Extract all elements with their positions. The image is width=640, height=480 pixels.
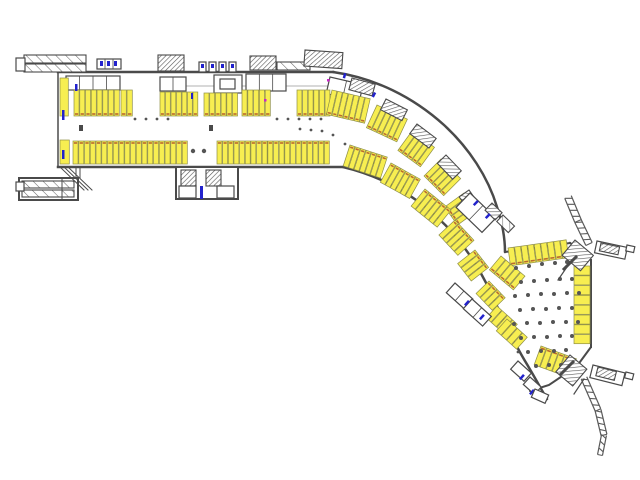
south-exit-room-a [179, 186, 196, 198]
bottom-stalls-1-stall [182, 141, 187, 164]
top-stalls-1-stall [74, 90, 79, 116]
bottom-stalls-2-stall [245, 141, 250, 164]
corridor-columns-a-dot [167, 118, 170, 121]
pillar-a [79, 125, 83, 131]
bottom-stalls-2-label-mark [257, 142, 260, 144]
stub-blue-d [231, 64, 234, 68]
top-stalls-2-label-mark [122, 113, 126, 115]
bottom-stalls-2-stall [302, 141, 307, 164]
top-stalls-5-label-mark [266, 113, 269, 115]
bottom-stalls-1-label-mark [172, 142, 175, 144]
bottom-stalls-1-stall [136, 141, 141, 164]
canopy-hatch-b [250, 56, 276, 70]
rotunda-columns-dot [532, 279, 536, 283]
top-stalls-3-label-mark [188, 113, 191, 115]
rotunda-columns-dot [544, 307, 548, 311]
top-stalls-5-stall [259, 90, 264, 116]
rotunda-right-stalls-stall [574, 295, 590, 304]
rotunda-columns-dot [525, 321, 529, 325]
bottom-stalls-2-stall [223, 141, 228, 164]
bottom-stalls-2-stall [279, 141, 284, 164]
bottom-stalls-2-stall [319, 141, 324, 164]
rotunda-columns-dot [526, 293, 530, 297]
south-exit-stair-b [206, 170, 221, 186]
nw-ramp-landing [16, 58, 25, 71]
rotunda-columns-dot [557, 306, 561, 310]
bottom-stalls-2-stall [324, 141, 329, 164]
south-exit-room-b [217, 186, 234, 198]
bottom-stalls-2-label-mark [291, 142, 294, 144]
rotunda-columns-dot [552, 349, 556, 353]
top-stalls-6-label-mark [298, 113, 301, 115]
top-stalls-3-label-mark [172, 113, 175, 115]
corridor-columns-a-dot [287, 118, 290, 121]
bottom-stalls-1-stall [177, 141, 182, 164]
bottom-stalls-2-label-mark [235, 142, 238, 144]
top-stalls-5-stall [248, 90, 253, 116]
magenta-dot-a [264, 99, 267, 102]
rotunda-columns-dot [534, 364, 538, 368]
top-stalls-4-label-mark [228, 113, 231, 115]
bottom-stalls-1-label-mark [80, 142, 83, 144]
canopy-hatch-a [158, 55, 184, 71]
rotunda-columns-dot [570, 334, 574, 338]
bottom-stalls-1-label-mark [91, 142, 94, 144]
top-stalls-2-stall [121, 90, 126, 116]
top-stalls-3-label-mark [194, 113, 197, 115]
pillar-b [209, 125, 213, 131]
top-stalls-1-label-mark [115, 113, 118, 115]
bottom-stalls-1-label-mark [154, 142, 157, 144]
bottom-stalls-1-stall [148, 141, 153, 164]
bend-corridor-columns-dot [517, 351, 520, 354]
rotunda-columns-dot [552, 292, 556, 296]
top-stalls-1-stall [91, 90, 96, 116]
rotunda-columns-dot [576, 320, 580, 324]
bottom-stalls-1-label-mark [149, 142, 152, 144]
top-stalls-1-label-mark [109, 113, 112, 115]
top-rooms-d [246, 74, 286, 91]
rotunda-columns-dot [539, 292, 543, 296]
canopy-hatch-c-group [304, 50, 343, 69]
stub-blue-b [211, 64, 214, 68]
bottom-stalls-1-stall [108, 141, 113, 164]
bend-corridor-columns-dot [344, 143, 347, 146]
bottom-stalls-1-label-mark [143, 142, 146, 144]
top-stalls-4-stall [210, 93, 215, 116]
top-stalls-6-stall [314, 90, 319, 116]
top-stalls-3-stall [166, 92, 171, 116]
elevator-blue-c [114, 61, 117, 66]
bottom-stalls-2-stall [313, 141, 318, 164]
top-stalls-6-stall [297, 90, 302, 116]
top-stalls-1-stall [109, 90, 114, 116]
bottom-stalls-1-stall [96, 141, 101, 164]
bottom-stalls-2-label-mark [303, 142, 306, 144]
rotunda-columns-dot [513, 294, 517, 298]
bottom-stalls-2-stall [285, 141, 290, 164]
top-stalls-4-label-mark [216, 113, 219, 115]
bottom-stalls-2-stall [251, 141, 256, 164]
bottom-stalls-2-label-mark [325, 142, 328, 144]
bottom-stalls-2-label-mark [224, 142, 227, 144]
bottom-stalls-2-stall [234, 141, 239, 164]
rotunda-right-stalls-stall [574, 305, 590, 314]
bottom-stalls-2-stall [228, 141, 233, 164]
bottom-stalls-1-stall [73, 141, 78, 164]
bottom-stalls-2-stall [296, 141, 301, 164]
bottom-stalls-2-stall [257, 141, 262, 164]
top-stalls-3-stall [171, 92, 176, 116]
top-stalls-5-label-mark [255, 113, 258, 115]
rotunda-columns-dot [545, 335, 549, 339]
bottom-stalls-1-label-mark [108, 142, 111, 144]
top-stalls-4-stall [215, 93, 220, 116]
corridor-columns-a-dot [145, 118, 148, 121]
pier-blue-a [75, 84, 78, 91]
top-stalls-1-stall [80, 90, 85, 116]
bottom-stalls-2-stall [262, 141, 267, 164]
top-stalls-2-stall [127, 90, 132, 116]
rotunda-columns-dot [531, 307, 535, 311]
rotunda-columns-dot [553, 261, 557, 265]
top-stalls-2-label-mark [128, 113, 131, 115]
top-stalls-3-label-mark [183, 113, 186, 115]
bottom-stalls-2-label-mark [218, 142, 221, 144]
bottom-stalls-1-stall [113, 141, 118, 164]
rotunda-right-stalls-stall [574, 286, 590, 295]
top-stalls-5-stall [265, 90, 270, 116]
corridor-columns-a-dot [276, 118, 279, 121]
bottom-stalls-2-label-mark [263, 142, 266, 144]
rotunda-columns-dot [547, 363, 551, 367]
top-rooms-c-inner [220, 79, 235, 89]
bottom-stalls-1-label-mark [166, 142, 169, 144]
bottom-stalls-2-label-mark [320, 142, 323, 144]
rotunda-columns-dot [512, 322, 516, 326]
bottom-stalls-1-stall [90, 141, 95, 164]
top-stalls-1-label-mark [98, 113, 101, 115]
bottom-stalls-1-label-mark [137, 142, 140, 144]
bottom-stalls-2-stall [217, 141, 222, 164]
rotunda-columns-dot [565, 291, 569, 295]
bottom-stalls-1-label-mark [97, 142, 100, 144]
sw-ramp-landing [16, 182, 24, 191]
rotunda-columns-dot [532, 335, 536, 339]
bend-corridor-columns-dot [299, 128, 302, 131]
top-stalls-4-label-mark [205, 113, 208, 115]
corridor-columns-a-dot [320, 118, 323, 121]
top-stalls-1-label-mark [86, 113, 89, 115]
top-stalls-4-stall [221, 93, 226, 116]
bottom-stalls-1-stall [165, 141, 170, 164]
top-stalls-1-stall [86, 90, 91, 116]
bottom-stalls-1-stall [79, 141, 84, 164]
rotunda-columns-dot [564, 348, 568, 352]
top-stalls-6-label-mark [320, 113, 323, 115]
stub-blue-c [221, 64, 224, 68]
bottom-stalls-2-label-mark [241, 142, 244, 144]
bottom-stalls-1-stall [102, 141, 107, 164]
rotunda-columns-dot [570, 277, 574, 281]
top-stalls-6-label-mark [315, 113, 318, 115]
east-upper-bridge-end-group [626, 245, 635, 253]
rotunda-columns-dot [577, 291, 581, 295]
bottom-stalls-2-stall [307, 141, 312, 164]
bottom-stalls-2-stall [268, 141, 273, 164]
corridor-columns-a-dot [134, 118, 137, 121]
bottom-stalls-1-label-mark [177, 142, 180, 144]
rotunda-columns-dot [540, 262, 544, 266]
top-stalls-5-label-mark [260, 113, 263, 115]
corridor-columns-a-dot [156, 118, 159, 121]
bottom-stalls-2-label-mark [269, 142, 272, 144]
top-stalls-6-label-mark [304, 113, 307, 115]
east-lower-bridge-end [625, 372, 634, 380]
top-stalls-6-stall [319, 90, 324, 116]
bottom-stalls-2-label-mark [314, 142, 317, 144]
bottom-stalls-1-label-mark [160, 142, 163, 144]
rotunda-columns-dot [519, 336, 523, 340]
bottom-stalls-1-stall [159, 141, 164, 164]
bottom-stalls-2-label-mark [252, 142, 255, 144]
bottom-stalls-1-stall [119, 141, 124, 164]
top-stalls-3-stall [193, 92, 198, 116]
top-stalls-4-stall [227, 93, 232, 116]
rotunda-columns-dot [514, 266, 518, 270]
top-stalls-1-label-mark [92, 113, 95, 115]
sw-ramp-lower [22, 190, 74, 197]
bend-corridor-columns-dot [332, 134, 335, 137]
top-stalls-3-stall [177, 92, 182, 116]
rotunda-right-stalls-stall [574, 335, 590, 344]
top-stalls-3-label-mark [177, 113, 180, 115]
bottom-stalls-2-stall [274, 141, 279, 164]
top-stalls-3-stall [160, 92, 165, 116]
top-stalls-6-stall [308, 90, 313, 116]
bottom-stalls-1-label-mark [126, 142, 129, 144]
rotunda-columns-dot [526, 350, 530, 354]
top-stalls-6-label-mark [309, 113, 312, 115]
rotunda-columns-dot [539, 349, 543, 353]
bottom-stalls-1-label-mark [103, 142, 106, 144]
rotunda-columns-dot [538, 321, 542, 325]
floorplan-canvas [0, 0, 640, 480]
corridor-columns-a-dot [309, 118, 312, 121]
bottom-stalls-1-label-mark [114, 142, 117, 144]
bottom-stall-left-stall [60, 140, 69, 164]
bottom-stalls-1-stall [131, 141, 136, 164]
sw-ramp-upper [22, 181, 74, 188]
top-stalls-3-stall [182, 92, 187, 116]
pier-blue-b [62, 110, 65, 120]
bottom-stalls-2-stall [240, 141, 245, 164]
bottom-stalls-1-label-mark [131, 142, 134, 144]
top-stalls-1-label-mark [81, 113, 84, 115]
elevator-blue-a [100, 61, 103, 66]
bottom-stalls-2-stall [290, 141, 295, 164]
corridor-columns-b-dot [202, 149, 206, 153]
bottom-stalls-1-label-mark [74, 142, 77, 144]
top-stalls-3-label-mark [161, 113, 164, 115]
bend-corridor-columns-dot [321, 130, 324, 133]
top-stalls-5-stall [242, 90, 247, 116]
pier-blue-d [191, 93, 193, 99]
bottom-stalls-1-label-mark [120, 142, 123, 144]
elevator-blue-b [107, 61, 110, 66]
top-stalls-5-label-mark [243, 113, 246, 115]
south-exit-stair-a [181, 170, 196, 186]
corridor-columns-a-dot [298, 118, 301, 121]
rotunda-columns-dot [570, 306, 574, 310]
top-stalls-3-label-mark [166, 113, 169, 115]
top-stalls-5-stall [254, 90, 259, 116]
south-exit-blue [200, 186, 203, 199]
bottom-stalls-1-label-mark [85, 142, 88, 144]
magenta-dot-b [327, 79, 330, 82]
bottom-stalls-2-label-mark [286, 142, 289, 144]
rotunda-columns-dot [519, 280, 523, 284]
bottom-stalls-2-label-mark [229, 142, 232, 144]
stub-blue-a [201, 64, 204, 68]
rotunda-columns-dot [527, 264, 531, 268]
top-stalls-4-label-mark [222, 113, 225, 115]
east-upper-bridge-end [626, 245, 635, 253]
bottom-stalls-1-stall [171, 141, 176, 164]
rotunda-columns-dot [545, 278, 549, 282]
bottom-stalls-2-label-mark [246, 142, 249, 144]
floorplan-svg [0, 0, 640, 480]
top-stalls-1-stall [103, 90, 108, 116]
east-lower-bridge-end-group [625, 372, 634, 380]
bottom-stalls-2-label-mark [297, 142, 300, 144]
top-stalls-4-label-mark [233, 113, 236, 115]
bottom-stalls-1-stall [85, 141, 90, 164]
top-stalls-5-label-mark [249, 113, 252, 115]
bottom-stalls-2-label-mark [280, 142, 283, 144]
bottom-stalls-1-label-mark [183, 142, 186, 144]
pier-blue-c [62, 150, 65, 159]
rotunda-columns-dot [551, 320, 555, 324]
rotunda-columns-dot [558, 334, 562, 338]
bottom-stalls-2-label-mark [308, 142, 311, 144]
top-stalls-1-stall [97, 90, 102, 116]
top-stalls-4-stall [233, 93, 238, 116]
rotunda-right-stalls-stall [574, 276, 590, 285]
bottom-stalls-2-label-mark [274, 142, 277, 144]
top-stalls-1-label-mark [75, 113, 78, 115]
rotunda-columns-dot [518, 308, 522, 312]
canopy-hatch-c [304, 50, 343, 69]
bottom-stalls-1-stall [142, 141, 147, 164]
corridor-columns-b-dot [191, 149, 195, 153]
rotunda-right-stalls-stall [574, 325, 590, 334]
top-stalls-4-stall [204, 93, 209, 116]
nw-ramp-upper [24, 55, 86, 63]
bottom-stalls-1-stall [154, 141, 159, 164]
top-stalls-6-stall [303, 90, 308, 116]
rotunda-columns-dot [564, 320, 568, 324]
top-stalls-1-label-mark [104, 113, 107, 115]
bottom-stalls-1-stall [125, 141, 130, 164]
nw-ramp-lower [24, 64, 86, 72]
bend-corridor-columns-dot [310, 129, 313, 132]
top-stalls-1-stall [114, 90, 119, 116]
top-stalls-4-label-mark [211, 113, 214, 115]
